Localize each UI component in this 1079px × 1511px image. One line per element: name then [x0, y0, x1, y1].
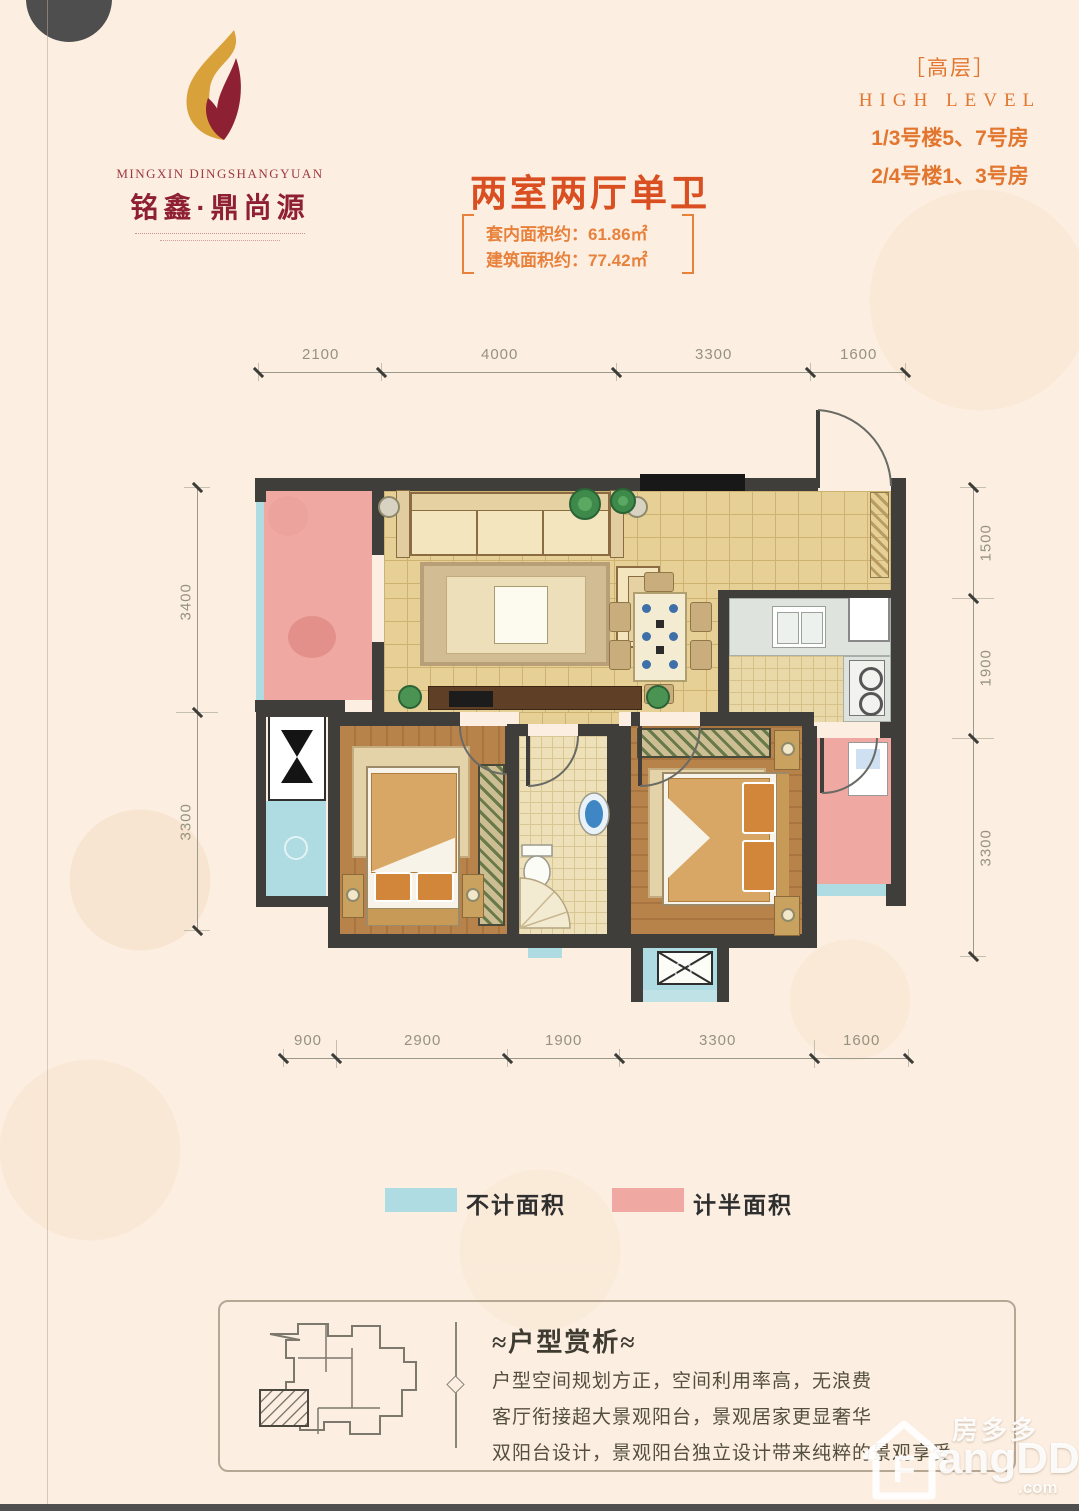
building-info: ［高层］ HIGH LEVEL 1/3号楼5、7号房 2/4号楼1、3号房: [830, 52, 1070, 190]
legend-label-no-area: 不计面积: [466, 1186, 566, 1220]
bracket-right: [682, 214, 694, 274]
laundry-door-arc: [822, 738, 877, 793]
page-fold-line: [47, 0, 48, 1511]
key-plan: [248, 1312, 433, 1457]
brand-logo: MINGXIN DINGSHANGYUAN 铭鑫·鼎尚源: [100, 28, 340, 258]
bracket-left: [462, 214, 474, 274]
key-plan-unit-highlight: [260, 1390, 308, 1426]
legend-swatch-half-area: [612, 1188, 684, 1212]
bathroom-door-arc: [528, 736, 578, 786]
area-box: 套内面积约：61.86㎡ 建筑面积约：77.42㎡: [462, 214, 694, 272]
flame-logo-icon: [174, 28, 266, 158]
room-line-2: 2/4号楼1、3号房: [830, 160, 1070, 190]
analysis-title: ≈户型赏析≈: [492, 1322, 637, 1359]
watermark-suffix: .com: [1018, 1478, 1058, 1498]
flyer-page: MINGXIN DINGSHANGYUAN 铭鑫·鼎尚源 两室两厅单卫 套内面积…: [0, 0, 1079, 1511]
area-inner: 套内面积约：61.86㎡: [486, 220, 648, 245]
flue-x-icon: [658, 952, 712, 984]
brand-tagline-rule2: [160, 240, 280, 241]
legend-label-half-area: 计半面积: [693, 1186, 793, 1220]
shower-icon: [520, 878, 570, 928]
brand-name-cn: 铭鑫·鼎尚源: [100, 186, 340, 226]
area-built: 建筑面积约：77.42㎡: [486, 246, 648, 271]
flue-hourglass-icon: [281, 730, 313, 783]
sink-icon: [579, 793, 609, 835]
brand-name-en: MINGXIN DINGSHANGYUAN: [100, 166, 340, 182]
high-level-tag: ［高层］: [830, 52, 1070, 82]
plan-title: 两室两厅单卫: [470, 163, 710, 217]
bedroom-right-door-arc: [640, 726, 700, 786]
plant-icon: [399, 489, 669, 708]
legend-swatch-no-area: [385, 1188, 457, 1212]
high-level-en: HIGH LEVEL: [830, 90, 1070, 112]
room-line-1: 1/3号楼5、7号房: [830, 122, 1070, 152]
brand-tagline-rule1: [135, 233, 305, 234]
svg-text:F: F: [892, 1449, 915, 1491]
bedroom-left-door-arc: [460, 726, 507, 774]
entry-door-arc: [818, 410, 891, 488]
fangdd-house-icon: F: [862, 1420, 946, 1502]
watermark-en: angDD: [938, 1434, 1079, 1484]
analysis-line-1: 户型空间规划方正，空间利用率高，无浪费: [492, 1366, 962, 1393]
bottom-edge-bar: [0, 1504, 1079, 1511]
plan-symbol-overlay: [250, 400, 910, 1010]
blue-strip-deco: [285, 837, 307, 859]
